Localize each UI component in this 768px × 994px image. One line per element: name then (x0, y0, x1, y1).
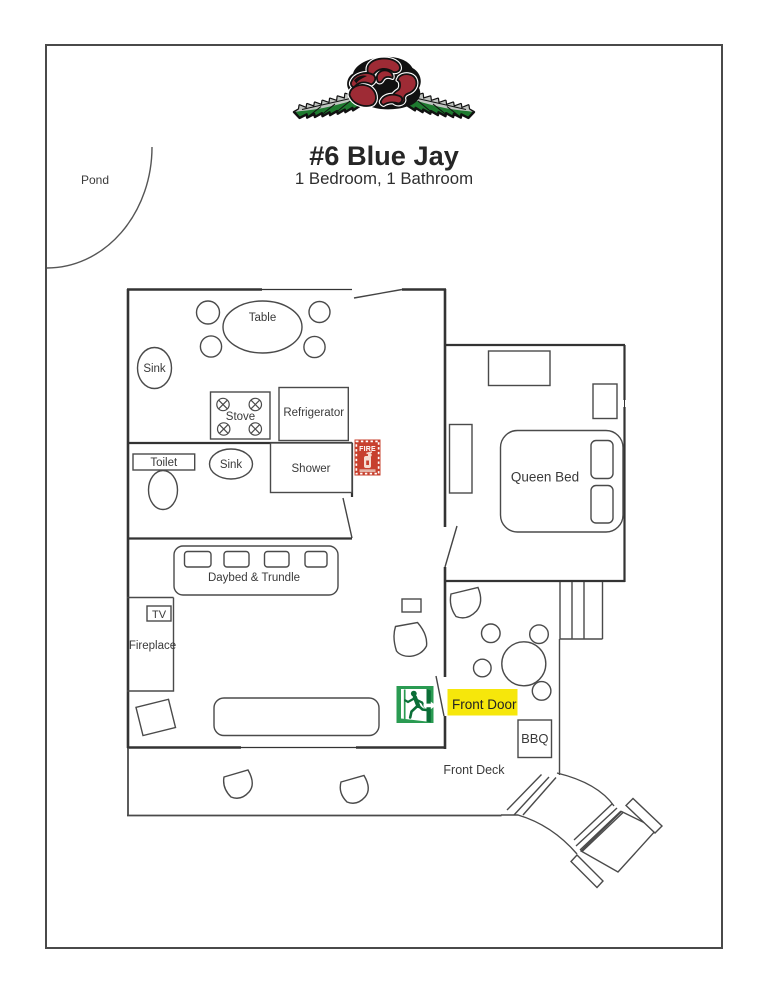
svg-text:#6 Blue Jay: #6 Blue Jay (309, 140, 459, 171)
svg-text:Shower: Shower (292, 463, 331, 475)
svg-text:BBQ: BBQ (521, 731, 548, 746)
svg-text:Toilet: Toilet (150, 457, 178, 469)
svg-text:Daybed & Trundle: Daybed & Trundle (208, 572, 300, 584)
svg-text:Stove: Stove (226, 411, 255, 423)
svg-text:Fireplace: Fireplace (129, 640, 176, 652)
svg-text:Pond: Pond (81, 173, 109, 187)
svg-text:Sink: Sink (220, 459, 243, 471)
svg-text:Table: Table (249, 312, 277, 324)
svg-text:Front Door: Front Door (452, 697, 517, 712)
svg-text:Sink: Sink (143, 363, 166, 375)
svg-text:Queen Bed: Queen Bed (511, 470, 579, 485)
svg-text:Refrigerator: Refrigerator (283, 407, 344, 419)
svg-text:Front Deck: Front Deck (443, 763, 505, 777)
svg-text:1 Bedroom, 1 Bathroom: 1 Bedroom, 1 Bathroom (295, 169, 473, 188)
svg-text:FIRE: FIRE (359, 446, 376, 453)
svg-text:TV: TV (152, 609, 167, 621)
